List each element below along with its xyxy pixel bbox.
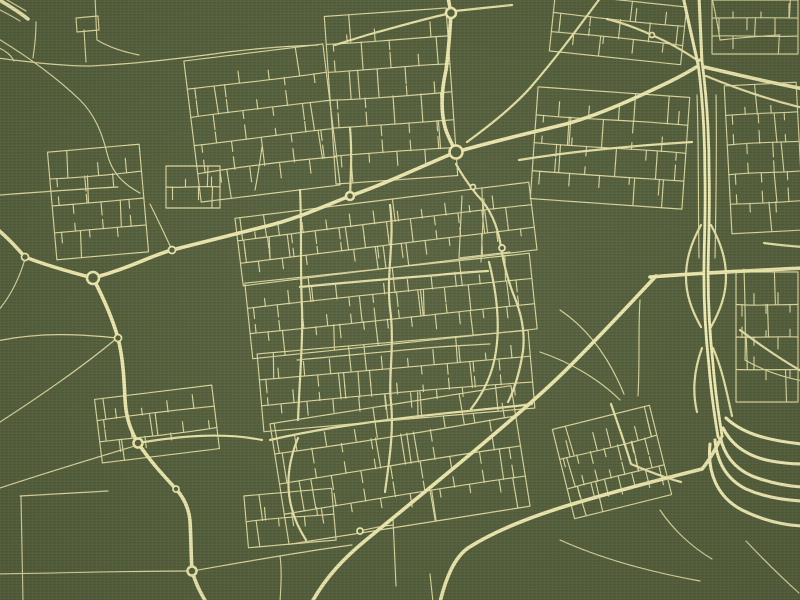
cluster-tooth	[86, 194, 87, 203]
cluster-tooth	[485, 353, 486, 360]
cluster-tooth	[410, 140, 411, 150]
cluster-tooth	[317, 508, 318, 516]
cluster-tooth	[423, 385, 424, 392]
cluster-connector	[212, 187, 213, 208]
roundabout-13	[357, 528, 363, 534]
cluster-tooth	[434, 82, 435, 93]
cluster-tooth	[585, 167, 586, 174]
roundabout-7	[134, 439, 143, 448]
cluster-tooth	[508, 224, 509, 231]
cluster-tooth	[788, 188, 789, 201]
cluster-tooth	[103, 220, 104, 229]
cluster-tooth	[255, 232, 256, 239]
cluster-tooth	[572, 138, 573, 145]
cluster-tooth	[369, 154, 370, 163]
cluster-tooth	[748, 163, 749, 173]
cluster-tooth	[437, 121, 438, 131]
cluster-tooth	[759, 131, 760, 144]
cluster-tooth	[363, 322, 364, 330]
cluster-tooth	[409, 123, 410, 133]
cluster-connector	[207, 166, 208, 187]
cluster-tooth	[735, 174, 736, 184]
cluster-tooth	[762, 191, 763, 202]
cluster-tooth	[774, 161, 775, 173]
cluster-tooth	[776, 202, 777, 212]
cluster-tooth	[469, 206, 470, 213]
cluster-tooth	[73, 204, 74, 213]
cluster-tooth	[89, 230, 90, 237]
cluster-tooth	[304, 517, 305, 526]
cluster-tooth	[421, 366, 422, 374]
roundabout-12	[471, 185, 476, 190]
cluster-tooth	[365, 98, 366, 108]
cluster-tooth	[279, 519, 280, 526]
cluster-tooth	[129, 199, 130, 208]
cluster-tooth	[589, 29, 590, 36]
cluster-tooth	[381, 125, 382, 136]
roundabout-9	[188, 567, 197, 576]
cluster-tooth	[773, 143, 774, 157]
cluster-tooth	[281, 404, 282, 413]
roundabout-0	[446, 8, 456, 18]
cluster-tooth	[603, 37, 604, 43]
cluster-tooth	[406, 86, 407, 95]
roundabout-4	[87, 272, 99, 284]
cluster-tooth	[676, 153, 677, 161]
medium-road-21	[350, 128, 351, 196]
cluster-tooth	[747, 144, 748, 154]
cluster-tooth	[648, 36, 649, 42]
roundabout-1	[450, 146, 463, 159]
map-poster	[0, 0, 800, 600]
roundabout-3	[169, 247, 176, 254]
roundabout-2	[346, 192, 354, 200]
cluster-tooth	[57, 179, 58, 187]
cluster-tooth	[341, 156, 342, 167]
cluster-tooth	[334, 61, 335, 72]
cluster-tooth	[389, 40, 390, 50]
cluster-tooth	[319, 392, 320, 400]
roundabout-6	[115, 335, 122, 342]
cluster-tooth	[733, 134, 734, 144]
roundabout-11	[499, 245, 505, 251]
cluster-tooth	[58, 197, 59, 206]
map-canvas	[0, 0, 800, 600]
roundabout-5	[22, 254, 29, 261]
roundabout-8	[173, 486, 179, 492]
cluster-tooth	[373, 295, 374, 302]
cluster-tooth	[646, 151, 647, 161]
cluster-tooth	[333, 44, 334, 51]
cluster-street	[736, 337, 798, 338]
cluster-tooth	[633, 122, 634, 133]
roundabout-10	[650, 33, 655, 38]
cluster-tooth	[337, 100, 338, 109]
cluster-tooth	[349, 71, 350, 82]
cluster-tooth	[418, 54, 419, 66]
cluster-tooth	[408, 358, 409, 366]
cluster-tooth	[398, 310, 399, 318]
cluster-tooth	[75, 223, 76, 231]
cluster-tooth	[117, 227, 118, 236]
cluster-tooth	[462, 388, 463, 396]
cluster-tooth	[267, 398, 268, 405]
